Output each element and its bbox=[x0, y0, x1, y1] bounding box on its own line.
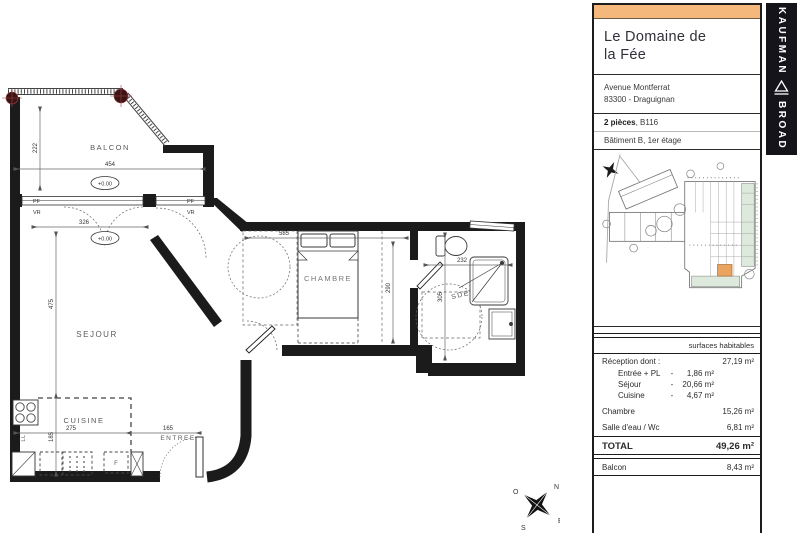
table-subrow: Entrée + PL-1,86 m² bbox=[594, 368, 760, 379]
svg-text:454: 454 bbox=[105, 162, 116, 168]
swing-arcs bbox=[64, 207, 482, 477]
unit-info: 2 pièces, B116 Bâtiment B, 1er étage bbox=[594, 114, 760, 150]
bed bbox=[298, 231, 358, 344]
svg-text:PF: PF bbox=[33, 199, 41, 205]
brand-word-bottom: BROAD bbox=[776, 101, 787, 150]
svg-text:275: 275 bbox=[66, 426, 77, 432]
brand-triangle-icon bbox=[774, 80, 789, 96]
table-subrow: Séjour-20,66 m² bbox=[594, 379, 760, 390]
svg-text:232: 232 bbox=[457, 258, 468, 264]
accent-bar bbox=[594, 5, 760, 19]
kitchen-fixtures bbox=[12, 398, 143, 476]
label-balcon: BALCON bbox=[90, 143, 130, 152]
balcony-railing bbox=[8, 89, 169, 147]
label-f: F bbox=[114, 461, 118, 467]
svg-text:585: 585 bbox=[279, 231, 290, 237]
label-chambre: CHAMBRE bbox=[304, 274, 352, 283]
label-sde: SDE bbox=[451, 290, 471, 301]
table-row: Réception dont :27,19 m² bbox=[594, 354, 760, 368]
svg-text:N: N bbox=[554, 484, 559, 491]
site-plan bbox=[594, 150, 760, 327]
compass-rose: N E S O bbox=[513, 481, 560, 532]
highlighted-unit bbox=[718, 265, 732, 277]
unit-type-row: 2 pièces, B116 bbox=[594, 114, 760, 131]
svg-text:475: 475 bbox=[49, 298, 55, 309]
project-address: Avenue Montferrat 83300 - Draguignan bbox=[594, 75, 760, 114]
unit-location-row: Bâtiment B, 1er étage bbox=[594, 131, 760, 149]
kaufman-broad-logo: KAUFMAN BROAD bbox=[766, 3, 797, 155]
svg-text:305: 305 bbox=[438, 291, 444, 302]
brand-word-top: KAUFMAN bbox=[776, 7, 787, 75]
project-title: Le Domaine de la Fée bbox=[594, 19, 760, 75]
balcony-row: Balcon8,43 m² bbox=[594, 459, 760, 475]
svg-text:S: S bbox=[521, 525, 526, 532]
svg-text:185: 185 bbox=[49, 431, 55, 442]
surfaces-table: surfaces habitables Réception dont :27,1… bbox=[594, 333, 760, 476]
svg-text:VR: VR bbox=[33, 210, 41, 216]
svg-text:PF: PF bbox=[187, 199, 195, 205]
table-row: Salle d'eau / Wc6,81 m² bbox=[594, 418, 760, 436]
site-plan-map bbox=[595, 151, 759, 324]
svg-text:165: 165 bbox=[163, 426, 174, 432]
svg-text:+0.00: +0.00 bbox=[98, 237, 112, 243]
table-row: Chambre15,26 m² bbox=[594, 401, 760, 418]
bathroom-fixtures bbox=[436, 236, 515, 339]
svg-text:290: 290 bbox=[386, 282, 392, 293]
svg-text:VR: VR bbox=[187, 210, 195, 216]
label-ll: LL bbox=[21, 434, 27, 441]
floor-plan-drawing: PF PF VR VR bbox=[0, 0, 560, 533]
buildings bbox=[609, 170, 755, 288]
level-markers: +0.00 +0.00 bbox=[91, 177, 119, 245]
svg-text:+0.00: +0.00 bbox=[98, 182, 112, 188]
svg-text:222: 222 bbox=[33, 142, 39, 153]
label-cuisine: CUISINE bbox=[64, 416, 105, 425]
label-sejour: SEJOUR bbox=[76, 330, 117, 339]
curved-wall bbox=[207, 360, 246, 477]
svg-text:O: O bbox=[513, 489, 519, 496]
surfaces-header: surfaces habitables bbox=[594, 338, 760, 353]
label-entree: ENTREE bbox=[160, 435, 195, 442]
floorplan-sheet: PF PF VR VR bbox=[0, 0, 800, 533]
table-subrow: Cuisine-4,67 m² bbox=[594, 390, 760, 401]
info-panel: Le Domaine de la Fée Avenue Montferrat 8… bbox=[592, 3, 762, 533]
svg-text:326: 326 bbox=[79, 220, 90, 226]
total-row: TOTAL49,26 m² bbox=[594, 437, 760, 454]
svg-text:E: E bbox=[558, 518, 560, 525]
